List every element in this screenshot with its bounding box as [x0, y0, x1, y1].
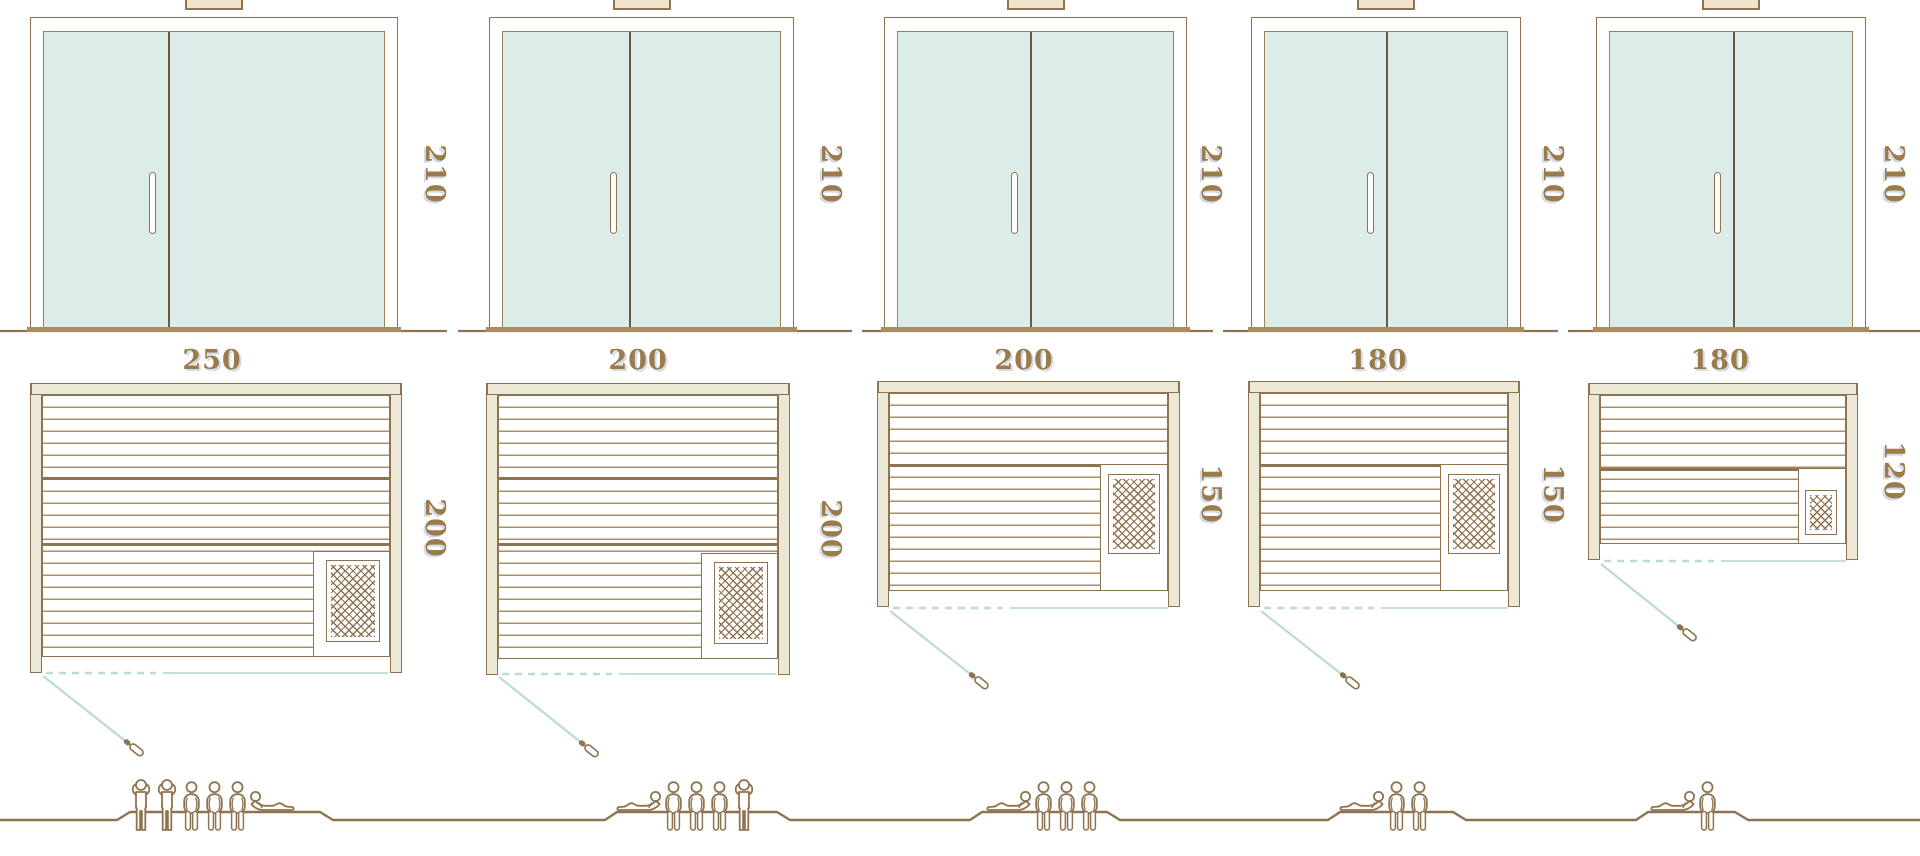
sauna-column-5: 210 180 120 — [0, 0, 1920, 856]
person-sitting-icon — [1407, 781, 1432, 831]
heater-lattice — [331, 565, 375, 637]
sauna-column-1: 210 250 200 — [0, 0, 1920, 856]
door-divider — [1733, 32, 1735, 329]
threshold — [881, 327, 1190, 332]
door-handle-icon — [1675, 623, 1697, 642]
roof-cap — [185, 0, 243, 10]
diagram-overlay — [0, 0, 1920, 856]
bench-edge-line — [43, 543, 389, 546]
roof-cap — [1702, 0, 1760, 10]
door-height-label: 210 — [419, 129, 449, 219]
capacity-terrain-line — [0, 812, 1920, 820]
person-sitting-icon — [202, 781, 227, 831]
bench-slats — [1260, 393, 1508, 591]
floor-plan — [30, 383, 402, 673]
bench-edge-line — [43, 477, 389, 480]
wall-right — [778, 383, 790, 675]
door-elevation — [30, 17, 398, 331]
door-handle — [149, 172, 156, 234]
wall-right — [1508, 381, 1520, 607]
wall-left — [877, 381, 889, 607]
wall-back — [1589, 383, 1857, 395]
person-sitting-icon — [179, 781, 204, 831]
door-handle-icon — [967, 671, 989, 690]
roof-cap — [1007, 0, 1065, 10]
bench-slats — [42, 395, 390, 657]
door-handle — [610, 172, 617, 234]
person-sitting-icon — [1054, 781, 1079, 831]
floor-plan — [1248, 381, 1520, 607]
person-sitting-icon — [1077, 781, 1102, 831]
heater-icon — [1805, 490, 1837, 535]
roof-cap — [1357, 0, 1415, 10]
threshold — [27, 327, 401, 332]
door-handle-icon — [577, 739, 599, 758]
plan-depth-label: 200 — [815, 484, 845, 574]
glass-door — [1264, 31, 1508, 330]
sauna-column-4: 210 180 150 — [0, 0, 1920, 856]
person-sitting-icon — [661, 781, 686, 831]
person-sitting-icon — [1384, 781, 1409, 831]
plan-width-label: 200 — [979, 346, 1069, 376]
person-sitting-icon — [1695, 781, 1720, 831]
plan-depth-label: 200 — [419, 483, 449, 573]
heater-enclosure — [1798, 468, 1846, 544]
door-elevation — [1596, 17, 1866, 331]
bench-edge-line — [499, 543, 777, 546]
plan-depth-label: 150 — [1195, 449, 1225, 539]
door-height-label: 210 — [1878, 129, 1908, 219]
person-lying-icon — [1338, 791, 1386, 812]
glass-door — [897, 31, 1174, 330]
plan-width-label: 250 — [167, 346, 257, 376]
door-elevation — [1251, 17, 1521, 331]
heater-enclosure — [1100, 464, 1168, 591]
bench-slats — [498, 395, 778, 659]
wall-left — [486, 383, 498, 675]
floor-plan — [877, 381, 1180, 607]
wall-right — [390, 383, 402, 673]
threshold — [486, 327, 797, 332]
threshold — [1248, 327, 1524, 332]
person-standing-icon — [153, 778, 181, 832]
glass-door — [502, 31, 781, 330]
roof-cap — [613, 0, 671, 10]
bench-edge-line — [1261, 464, 1507, 467]
wall-left — [30, 383, 42, 673]
plan-width-label: 200 — [593, 346, 683, 376]
door-divider — [168, 32, 170, 329]
heater-lattice — [719, 567, 763, 639]
sauna-column-2: 210 200 200 — [0, 0, 1920, 856]
door-handle-icon — [1338, 671, 1360, 690]
door-height-label: 210 — [1195, 129, 1225, 219]
person-lying-icon — [248, 791, 296, 812]
threshold — [1593, 327, 1869, 332]
heater-icon — [714, 562, 768, 644]
plan-width-label: 180 — [1333, 346, 1423, 376]
bench-edge-line — [1601, 468, 1845, 471]
heater-icon — [1448, 474, 1500, 554]
glass-door — [1609, 31, 1853, 330]
heater-enclosure — [701, 553, 778, 659]
door-height-label: 210 — [1537, 129, 1567, 219]
bench-edge-line — [499, 477, 777, 480]
glass-door — [43, 31, 385, 330]
person-sitting-icon — [684, 781, 709, 831]
wall-right — [1168, 381, 1180, 607]
door-handle-icon — [122, 738, 144, 757]
wall-left — [1588, 383, 1600, 560]
door-handle — [1011, 172, 1018, 234]
door-swing-group — [43, 561, 1846, 748]
bench-slats — [889, 393, 1168, 591]
person-standing-icon — [127, 778, 155, 832]
wall-right — [1846, 383, 1858, 560]
door-handle — [1714, 172, 1721, 234]
plan-depth-label: 120 — [1878, 426, 1908, 516]
person-lying-icon — [615, 791, 663, 812]
person-sitting-icon — [225, 781, 250, 831]
door-elevation — [884, 17, 1187, 331]
door-height-label: 210 — [815, 129, 845, 219]
person-sitting-icon — [707, 781, 732, 831]
plan-width-label: 180 — [1675, 346, 1765, 376]
door-divider — [1030, 32, 1032, 329]
wall-back — [1249, 381, 1519, 393]
sauna-dimensions-diagram: 210 250 200 210 200 — [0, 0, 1920, 856]
heater-lattice — [1453, 479, 1495, 549]
heater-icon — [326, 560, 380, 642]
plan-depth-label: 150 — [1537, 449, 1567, 539]
door-elevation — [489, 17, 794, 331]
door-divider — [1386, 32, 1388, 329]
door-divider — [629, 32, 631, 329]
sauna-column-3: 210 200 150 — [0, 0, 1920, 856]
bench-slats — [1600, 395, 1846, 544]
person-lying-icon — [985, 791, 1033, 812]
door-handle — [1367, 172, 1374, 234]
heater-enclosure — [1440, 464, 1508, 591]
heater-lattice — [1113, 479, 1155, 549]
heater-lattice — [1810, 495, 1832, 530]
bench-edge-line — [890, 464, 1167, 467]
heater-enclosure — [313, 551, 390, 657]
wall-left — [1248, 381, 1260, 607]
person-sitting-icon — [1031, 781, 1056, 831]
floor-plan — [486, 383, 790, 675]
person-standing-icon — [730, 778, 758, 832]
wall-back — [31, 383, 401, 395]
floor-plan — [1588, 383, 1858, 560]
wall-back — [878, 381, 1179, 393]
wall-back — [487, 383, 789, 395]
person-lying-icon — [1649, 791, 1697, 812]
heater-icon — [1108, 474, 1160, 554]
